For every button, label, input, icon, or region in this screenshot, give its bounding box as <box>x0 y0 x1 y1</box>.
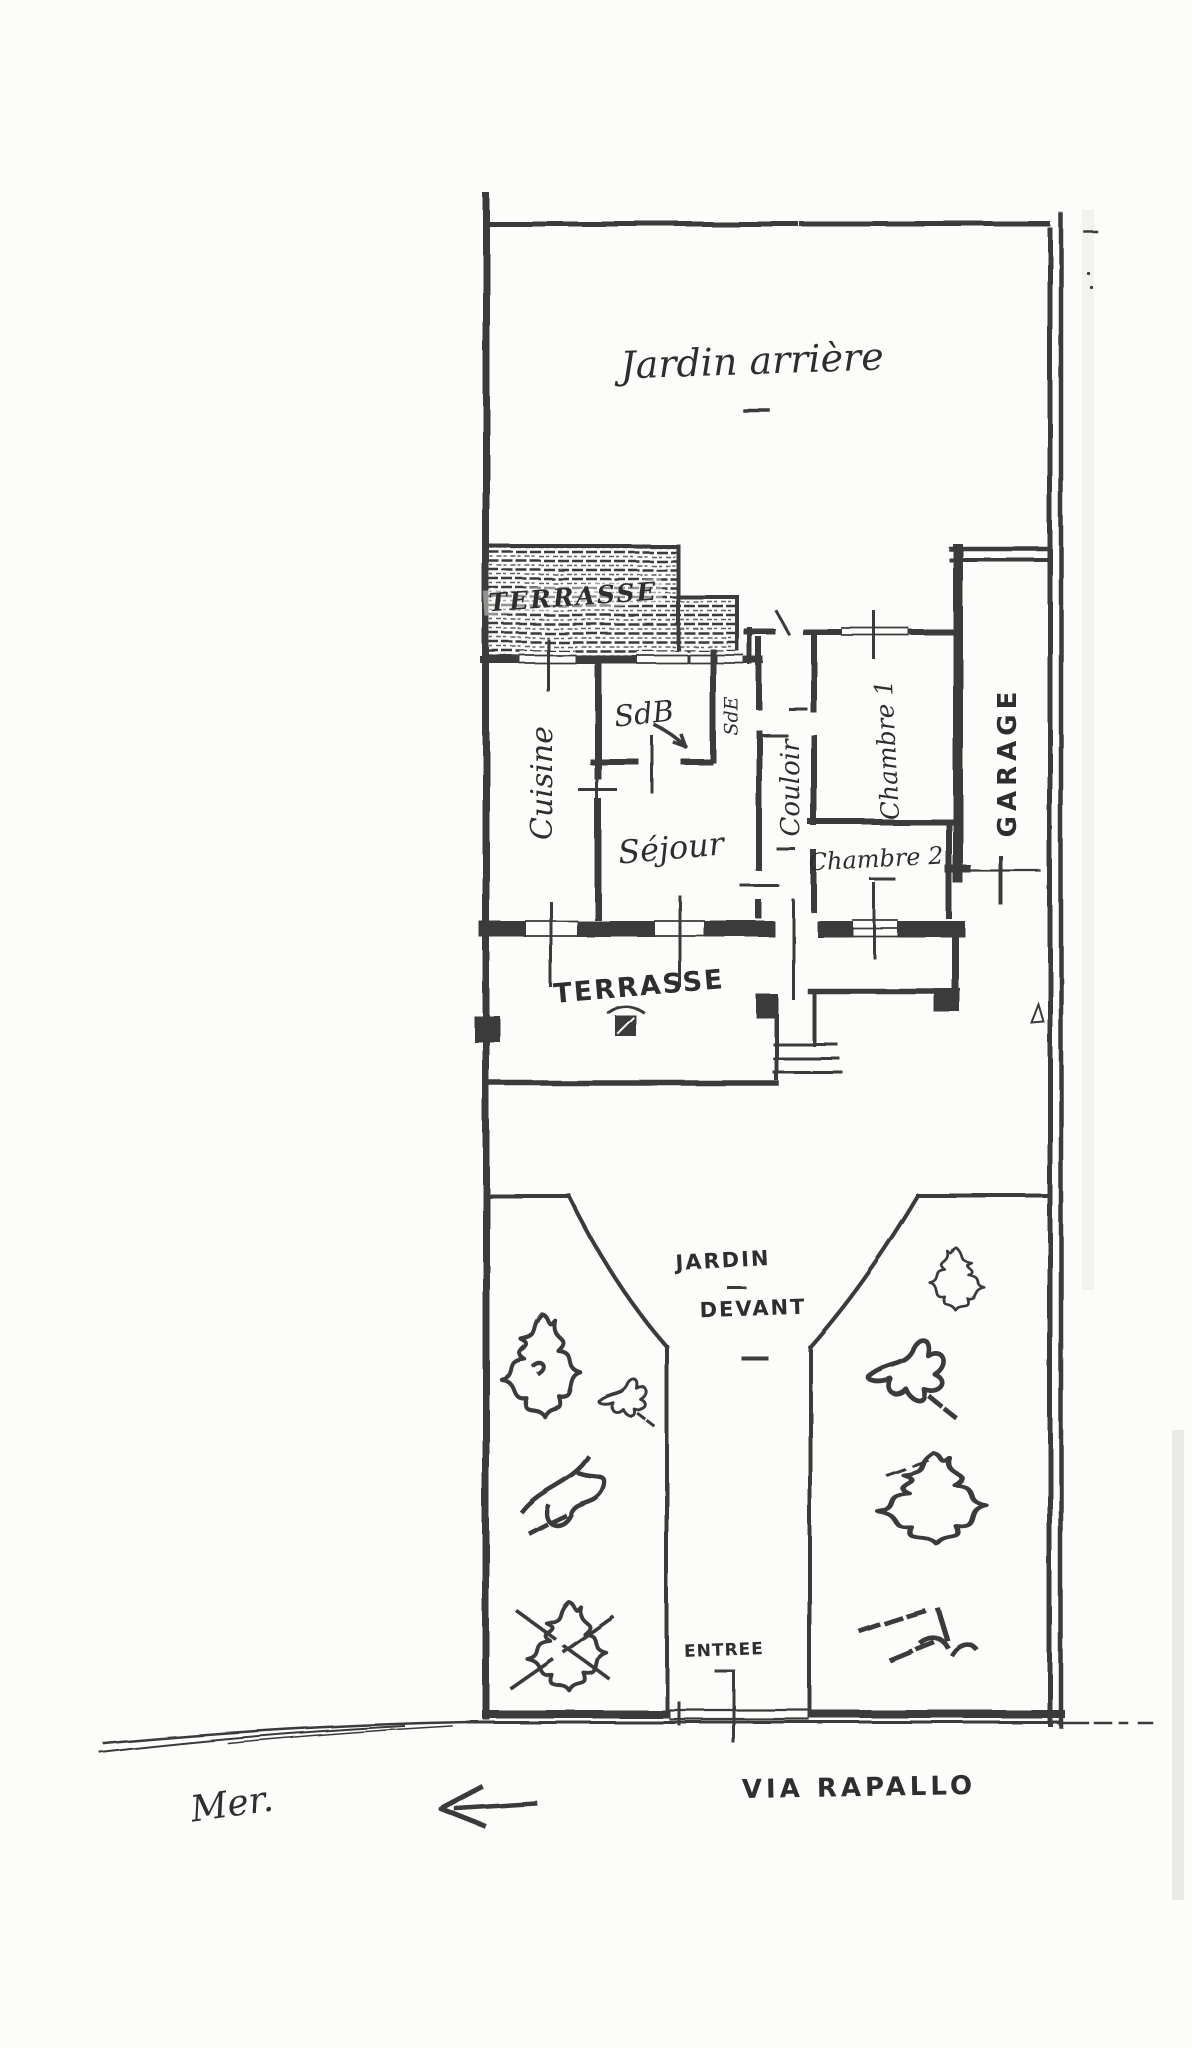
scan-streaks <box>1082 210 1184 1900</box>
terrace-steps <box>774 991 841 1078</box>
shrub-doodle <box>869 1341 955 1417</box>
room-label-bathroom: SdB <box>613 696 675 731</box>
west-arrow-icon <box>441 1788 536 1826</box>
room-label-hallway: Couloir <box>778 739 804 836</box>
room-label-shower: SdE <box>723 696 742 735</box>
shrub-doodle <box>501 1314 580 1416</box>
room-label-garage: GARAGE <box>995 687 1021 838</box>
shrub-doodle <box>878 1453 986 1543</box>
room-label-kitchen: Cuisine <box>528 726 558 840</box>
street-label: VIA RAPALLO <box>742 1773 977 1803</box>
entry-door <box>776 611 803 638</box>
shrub-doodle <box>861 1610 976 1658</box>
sdb-arrow <box>656 726 686 747</box>
front-garden-label-line2: DEVANT <box>699 1297 806 1322</box>
floor-plan-drawing <box>0 0 1192 2048</box>
front-garden-layout <box>488 1196 1049 1742</box>
shrub-doodle <box>598 1379 653 1425</box>
shrub-doodle <box>930 1248 984 1310</box>
front-terrace <box>474 937 960 1083</box>
back-garden-label: Jardin arrière <box>620 337 885 384</box>
room-label-bedroom2: Chambre 2 <box>808 843 944 874</box>
front-garden-label-line1: JARDIN <box>675 1248 771 1274</box>
street-edge-lines <box>100 1722 1152 1752</box>
floor-plan-page: Jardin arrière TERRASSE Cuisine SdB SdE … <box>0 0 1192 2048</box>
room-label-living: Séjour <box>617 827 725 868</box>
entrance-label: ENTREE <box>684 1641 764 1661</box>
bedroom1-window <box>842 612 908 658</box>
room-label-bedroom1: Chambre 1 <box>871 679 903 821</box>
table-icon <box>609 1007 644 1037</box>
shrub-doodle <box>523 1458 605 1533</box>
